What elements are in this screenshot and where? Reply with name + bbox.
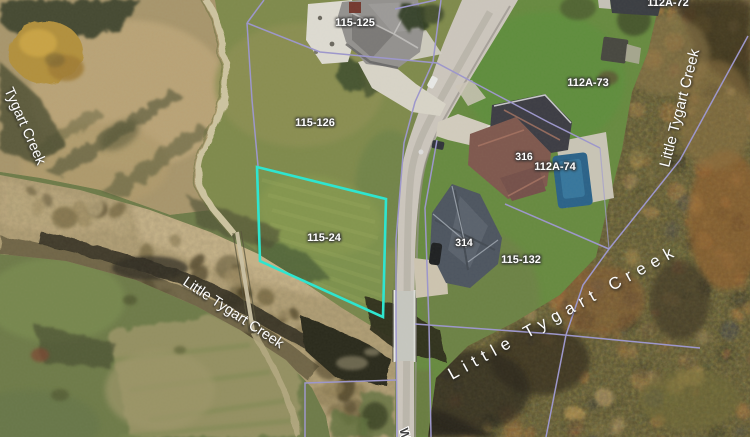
- svg-text:112A-74: 112A-74: [534, 161, 577, 173]
- svg-text:314: 314: [455, 237, 473, 249]
- svg-text:112A-72: 112A-72: [647, 0, 689, 9]
- svg-text:W: W: [397, 427, 413, 437]
- svg-text:115-24: 115-24: [307, 232, 342, 244]
- svg-text:112A-73: 112A-73: [567, 77, 609, 89]
- svg-text:115-126: 115-126: [295, 117, 335, 129]
- svg-text:115-125: 115-125: [335, 17, 375, 29]
- svg-text:316: 316: [515, 151, 533, 163]
- svg-text:115-132: 115-132: [501, 254, 541, 266]
